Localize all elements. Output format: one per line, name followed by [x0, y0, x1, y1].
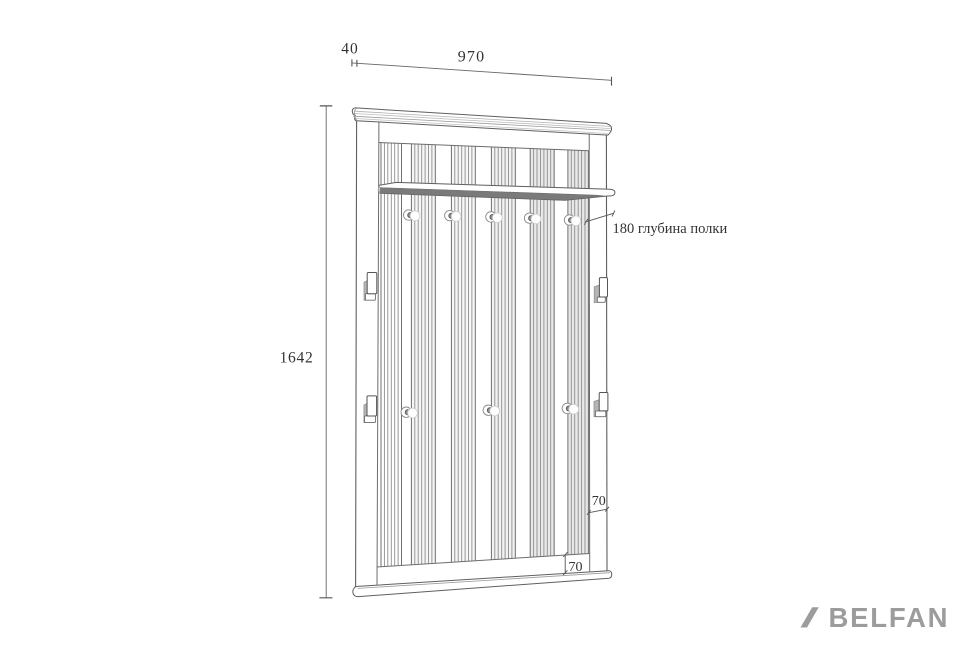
svg-text:70: 70 — [569, 560, 583, 575]
svg-text:970: 970 — [458, 48, 486, 65]
svg-text:1642: 1642 — [280, 349, 314, 366]
svg-text:40: 40 — [341, 40, 359, 57]
svg-text:70: 70 — [592, 494, 606, 509]
svg-text:180 глубина полки: 180 глубина полки — [613, 221, 728, 237]
svg-text:BELFAN: BELFAN — [829, 602, 950, 633]
